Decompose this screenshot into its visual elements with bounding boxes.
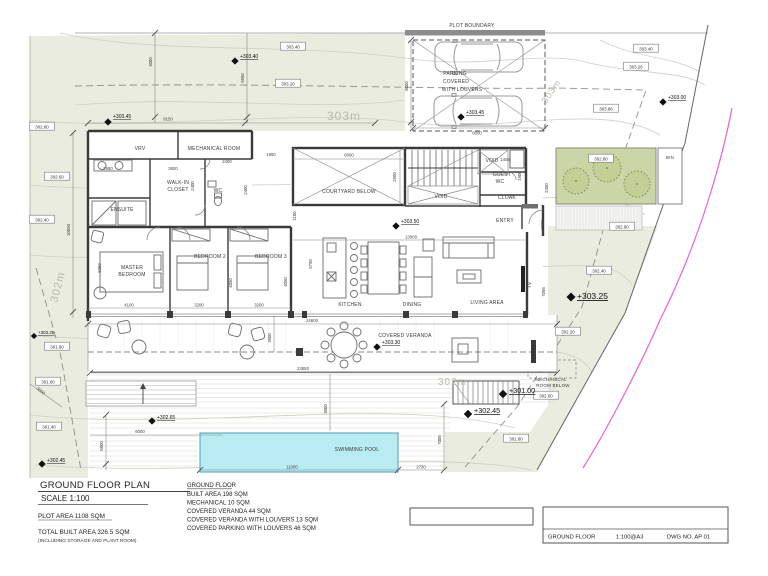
spot-elevation: 302.40 [592, 269, 606, 274]
dim-label: 4050 [228, 278, 233, 288]
plan-title: GROUND FLOOR PLAN [40, 480, 150, 491]
dim-label: 4050 [283, 277, 288, 287]
dim-label: 3000 [323, 404, 328, 414]
contour-label: 302m [438, 377, 467, 388]
dim-label: 23850 [297, 366, 310, 371]
level-label: +302.45 [474, 406, 500, 415]
dim-label: 2400 [544, 183, 549, 193]
dim-label: 5790 [308, 259, 313, 269]
dim-label: 3200 [254, 303, 264, 308]
dim-label: 2900 [392, 172, 397, 182]
spot-elevation: 302.20 [561, 330, 575, 335]
level-label: +303.00 [668, 95, 686, 101]
dim-label: 1500 [540, 220, 545, 230]
covered-veranda-label: COVERED VERANDA [378, 333, 432, 339]
area-schedule-item: COVERED PARKING WITH LOUVERS 46 SQM [187, 526, 316, 532]
room-label-bedroom3: BEDROOM 3 [255, 254, 287, 260]
plan-scale: SCALE 1:100 [41, 494, 90, 503]
room-label-bedroom2: BEDROOM 2 [194, 254, 226, 260]
room-label-dining: DINING [403, 302, 422, 308]
dim-label: 3200 [194, 303, 204, 308]
title-block-drawing-name: GROUND FLOOR [548, 535, 595, 541]
title-block-dwg-no: DWG NO. AP 01 [667, 535, 710, 541]
dim-label: 2400 [190, 181, 195, 191]
dim-label: 7056 [541, 287, 546, 297]
room-label-vrv: VRV [135, 146, 146, 152]
tv-unit [521, 266, 525, 292]
floor-plan-sheet: PLOT BOUNDARY 303m 303m 302m 302m VRV ME… [0, 0, 768, 576]
room-label-cloak: CLOAK [498, 195, 516, 201]
garden-steps [86, 381, 196, 406]
area-schedule-item: COVERED VERANDA WITH LOUVERS 13 SQM [187, 518, 318, 524]
room-label-ensuite: ENSUITE [110, 207, 134, 213]
plot-boundary-label: PLOT BOUNDARY [449, 23, 495, 29]
dim-label: 24600 [306, 318, 319, 323]
room-label-courtyard: COURTYARD BELOW [322, 189, 376, 195]
dim-label: 6000 [135, 429, 145, 434]
room-label-entry: ENTRY [496, 218, 514, 224]
mech-below-label: ROOM BELOW [536, 383, 570, 388]
room-label-guest-wc: GUEST [493, 172, 511, 178]
plan-canvas: PLOT BOUNDARY 303m 303m 302m 302m VRV ME… [0, 0, 768, 576]
dim-label: 5350 [97, 263, 102, 273]
dim-label: 8000 [404, 81, 409, 91]
dim-label: 7006 [437, 435, 442, 445]
area-schedule-item: MECHANICAL 10 SQM [187, 501, 250, 507]
dim-label: 1900 [517, 171, 522, 181]
dim-label: 3500 [267, 333, 272, 343]
swimming-pool-label: SWIMMING POOL [335, 447, 380, 453]
mech-below-label: MECHANICAL [535, 377, 567, 382]
level-label: +302.45 [47, 458, 65, 464]
spot-elevation: 303.86 [599, 107, 613, 112]
bin-label: BIN [666, 155, 674, 160]
spot-elevation: 302.60 [50, 175, 64, 180]
dim-label: 13000 [405, 235, 418, 240]
spot-elevation: 303.20 [281, 82, 295, 87]
dim-label: 2730 [416, 465, 426, 470]
level-label: +303.30 [382, 340, 400, 346]
level-label: +302.65 [157, 415, 175, 421]
area-schedule-heading: GROUND FLOOR [187, 483, 237, 489]
plot-area-text: PLOT AREA 1108 SQM [38, 513, 105, 520]
room-label-living: LIVING AREA [470, 300, 504, 306]
dim-label: 2400 [222, 159, 232, 164]
dim-label: 1950 [266, 152, 276, 157]
level-label: +303.45 [466, 110, 484, 116]
spot-elevation: 301.40 [42, 425, 56, 430]
contour-label: 303m [327, 109, 361, 123]
level-label: +303.25 [38, 330, 55, 335]
area-schedule-item: BUILT AREA 198 SQM [187, 492, 248, 498]
room-label-guest-wc: WC [496, 179, 505, 185]
dim-label: 3000 [148, 57, 153, 67]
room-label-wc: WC [214, 188, 223, 194]
room-label-master-bedroom: BEDROOM [118, 272, 145, 278]
plot-boundary-band [405, 30, 545, 36]
dim-label: 2400 [243, 185, 248, 195]
area-schedule-item: COVERED VERANDA 44 SQM [187, 509, 271, 515]
dim-label: 9550 [240, 73, 245, 83]
spot-elevation: 302.40 [35, 218, 49, 223]
spot-elevation: 302.00 [539, 394, 553, 399]
room-label-void: VOID [434, 194, 447, 200]
dim-label: 11000 [286, 465, 298, 470]
dim-label: 3600 [168, 166, 178, 171]
level-label: +303.40 [240, 54, 258, 60]
spot-elevation: 303.40 [639, 47, 653, 52]
dim-label: 1405 [500, 157, 510, 162]
dim-label: 1100 [292, 211, 297, 221]
room-label-walk-in-closet: CLOSET [167, 187, 188, 193]
spot-elevation: 303.40 [286, 45, 300, 50]
room-label-mechanical: MECHANICAL ROOM [188, 146, 241, 152]
revision-box [410, 508, 533, 525]
spot-elevation: 301.60 [41, 380, 55, 385]
room-label-kitchen: KITCHEN [338, 302, 362, 308]
level-label: +303.50 [401, 219, 419, 225]
level-label: +303.25 [577, 291, 608, 301]
room-label-master-bedroom: MASTER [121, 265, 143, 271]
parking-label: PARKING [443, 71, 467, 77]
dim-label: 10050 [66, 223, 71, 236]
total-built-area-note: (INCLUDING STORAGE AND PLANT ROOM) [38, 538, 137, 544]
room-label-walk-in-closet: WALK-IN [167, 180, 189, 186]
title-block-scale: 1:100@A3 [616, 535, 643, 541]
spot-elevation: 302.80 [594, 157, 608, 162]
dim-label: 9150 [163, 117, 173, 122]
room-label-void: VOID [485, 158, 498, 164]
dim-label: 2950 [103, 166, 113, 171]
spot-elevation: 302.80 [615, 225, 629, 230]
spot-elevation: 301.80 [50, 345, 64, 350]
spot-elevation: 301.80 [509, 437, 523, 442]
dim-label: 8000 [472, 131, 482, 136]
level-label: +303.45 [113, 114, 131, 120]
parking-label: COVERED [443, 79, 469, 85]
tv-label: TV [527, 281, 533, 288]
parking-label: WITH LOUVERS [442, 87, 483, 93]
spot-elevation: 302.80 [35, 125, 49, 130]
dim-label: 4100 [124, 303, 134, 308]
spot-elevation: 303.26 [629, 65, 643, 70]
dim-label: 6000 [344, 153, 354, 158]
total-built-area-text: TOTAL BUILT AREA 326.5 SQM [38, 529, 130, 536]
level-label: +301.00 [509, 386, 535, 395]
dim-label: 5800 [99, 441, 104, 451]
